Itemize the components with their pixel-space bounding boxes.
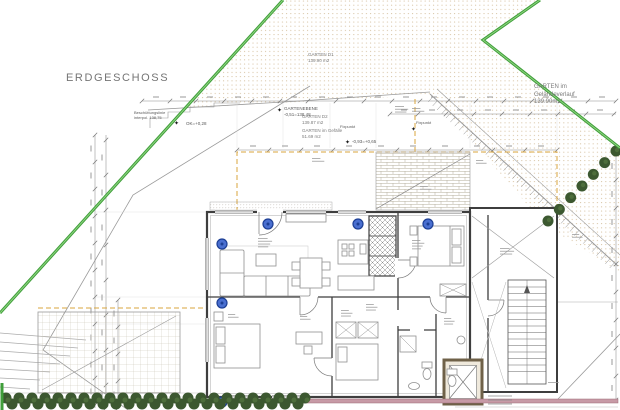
annotation-fixpunkt-1: Fixpunkt <box>416 120 431 125</box>
gravel-strip <box>210 202 332 210</box>
toilet <box>423 369 431 380</box>
survey-star-icon: ✦ <box>411 127 416 133</box>
survey-star-icon: ✦ <box>345 140 350 146</box>
annotation-gartenebene: GARTENEBENE -0,51=138,48 <box>284 106 318 117</box>
retaining-wall-brick <box>376 152 470 210</box>
kitchen-counter <box>338 276 374 290</box>
hedge-row <box>1 393 311 410</box>
coffee-table <box>256 254 276 266</box>
floor-plan: ERDGESCHOSS GARTEN D1 139.90 m2 GARTEN i… <box>0 0 620 410</box>
washbasin <box>409 383 420 390</box>
garden-label-gefaelle: GARTEN im Gefälle 51.69 m2 <box>302 128 342 139</box>
sideboard <box>286 214 326 222</box>
washbasin <box>457 336 465 344</box>
plan-title: ERDGESCHOSS <box>66 72 169 86</box>
toilet <box>448 376 456 387</box>
garden-label-d1: GARTEN D1 139.90 m2 <box>308 52 334 63</box>
annotation-ok: OK=+0,28 <box>186 121 207 127</box>
garden-label-verlauf: GARTEN im Geländeverlauf 139.90m2 <box>534 84 575 107</box>
chimney-shaft <box>369 216 396 276</box>
annotation-hoehe: -0,93=+0,65 <box>352 139 376 145</box>
annotation-fixpunkt-2: Fixpunkt <box>340 124 355 129</box>
terrace <box>38 312 180 393</box>
annotation-beschuettung: Beschüttungslinie interpol. 138,75 <box>134 110 165 120</box>
survey-star-icon: ✦ <box>174 121 179 127</box>
desk <box>296 332 322 344</box>
dining-table <box>300 258 322 288</box>
survey-star-icon: ✦ <box>277 108 282 114</box>
